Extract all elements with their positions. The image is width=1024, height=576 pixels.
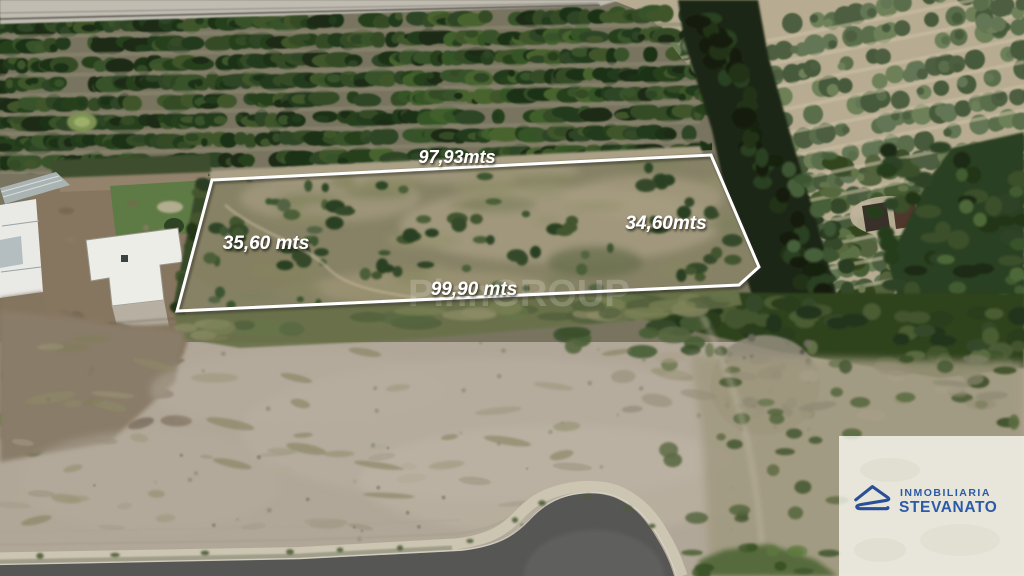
svg-text:97,93mts: 97,93mts <box>418 147 495 167</box>
svg-text:34,60mts: 34,60mts <box>625 213 706 234</box>
svg-text:99,90 mts: 99,90 mts <box>431 279 518 300</box>
svg-text:STEVANATO: STEVANATO <box>899 499 997 516</box>
svg-text:INMOBILIARIA: INMOBILIARIA <box>900 487 991 499</box>
svg-text:35,60 mts: 35,60 mts <box>223 233 310 254</box>
